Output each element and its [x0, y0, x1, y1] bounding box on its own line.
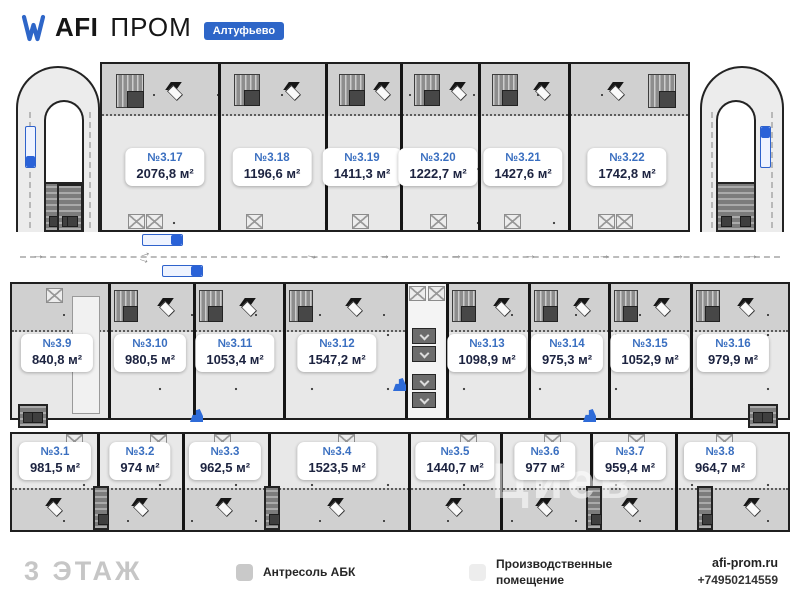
- unit-area: 977 м²: [525, 460, 564, 475]
- stairs-icon: [534, 290, 558, 322]
- unit-label-3-20[interactable]: №3.20 1222,7 м²: [398, 148, 477, 186]
- stairs-icon: [289, 290, 313, 322]
- unit-number: №3.14: [542, 338, 592, 350]
- unit-area: 1427,6 м²: [494, 166, 551, 181]
- unit-number: №3.2: [120, 446, 159, 458]
- unit-number: №3.8: [695, 446, 745, 458]
- unit-label-3-12[interactable]: №3.12 1547,2 м²: [297, 334, 376, 372]
- unit-number: №3.20: [409, 152, 466, 164]
- unit-label-3-4[interactable]: №3.4 1523,5 м²: [297, 442, 376, 480]
- pallet-jack-icon: [156, 298, 178, 316]
- unit-area: 1196,6 м²: [244, 166, 301, 181]
- unit-label-3-1[interactable]: №3.1 981,5 м²: [19, 442, 91, 480]
- lane-marking: [771, 112, 773, 228]
- stairs-icon: [748, 404, 778, 428]
- unit-area: 1547,2 м²: [308, 352, 365, 367]
- stairs-icon: [116, 74, 144, 108]
- floor-plan-page: AFI ПРОМ Алтуфьево: [0, 0, 800, 595]
- stairs-icon: [696, 290, 720, 322]
- unit-label-3-9[interactable]: №3.9 840,8 м²: [21, 334, 93, 372]
- unit-wall: [405, 284, 408, 418]
- location-badge[interactable]: Алтуфьево: [204, 22, 284, 40]
- stairs-icon: [264, 486, 280, 530]
- shaft-box-icon: [46, 288, 63, 303]
- stairs-icon: [716, 182, 756, 232]
- brand-prom: ПРОМ: [110, 12, 191, 43]
- truck-icon: [760, 126, 771, 168]
- pallet-jack-icon: [736, 298, 758, 316]
- unit-label-3-19[interactable]: №3.19 1411,3 м²: [323, 148, 402, 186]
- unit-label-3-13[interactable]: №3.13 1098,9 м²: [447, 334, 526, 372]
- unit-number: №3.16: [708, 338, 758, 350]
- shaft-box-icon: [616, 214, 633, 229]
- unit-area: 1098,9 м²: [458, 352, 515, 367]
- stairs-icon: [492, 74, 518, 106]
- unit-area: 979,9 м²: [708, 352, 758, 367]
- road-center-line: [20, 256, 780, 258]
- pallet-jack-icon: [282, 82, 304, 100]
- unit-area: 974 м²: [120, 460, 159, 475]
- pallet-jack-icon: [492, 298, 514, 316]
- stairs-icon: [339, 74, 365, 106]
- pallet-jack-icon: [130, 498, 152, 516]
- arrow-icon: →: [598, 248, 611, 261]
- arrow-icon: →: [378, 248, 391, 261]
- unit-number: №3.5: [426, 446, 483, 458]
- unit-number: №3.19: [334, 152, 391, 164]
- arrow-icon: →: [136, 250, 152, 266]
- legend-label: Производственные помещение: [496, 556, 614, 588]
- pallet-jack-icon: [344, 298, 366, 316]
- stairs-icon: [414, 74, 440, 106]
- unit-number: №3.1: [30, 446, 80, 458]
- footer-phone: +74950214559: [698, 573, 778, 587]
- unit-area: 962,5 м²: [200, 460, 250, 475]
- pallet-jack-icon: [572, 298, 594, 316]
- elevator-icon: [412, 374, 436, 390]
- unit-area: 975,3 м²: [542, 352, 592, 367]
- shaft-box-icon: [246, 214, 263, 229]
- unit-wall: [400, 64, 403, 230]
- unit-number: №3.22: [598, 152, 655, 164]
- unit-area: 1053,4 м²: [206, 352, 263, 367]
- unit-area: 1222,7 м²: [409, 166, 466, 181]
- unit-area: 1052,9 м²: [621, 352, 678, 367]
- arrow-icon: →: [746, 248, 759, 261]
- truck-icon: [142, 234, 183, 246]
- stairs-icon: [648, 74, 676, 108]
- lane-marking: [711, 112, 713, 228]
- stairs-icon: [614, 290, 638, 322]
- antresol-strip-top: [102, 64, 688, 116]
- pallet-jack-icon: [326, 498, 348, 516]
- unit-number: №3.3: [200, 446, 250, 458]
- unit-label-3-16[interactable]: №3.16 979,9 м²: [697, 334, 769, 372]
- arrow-icon: →: [450, 248, 463, 261]
- stairs-icon: [199, 290, 223, 322]
- unit-number: №3.11: [206, 338, 263, 350]
- header: AFI ПРОМ Алтуфьево: [20, 12, 284, 43]
- unit-label-3-14[interactable]: №3.14 975,3 м²: [531, 334, 603, 372]
- unit-wall: [182, 434, 185, 530]
- unit-wall: [283, 284, 286, 418]
- unit-label-3-6[interactable]: №3.6 977 м²: [514, 442, 575, 480]
- unit-label-3-2[interactable]: №3.2 974 м²: [109, 442, 170, 480]
- shaft-box-icon: [504, 214, 521, 229]
- unit-label-3-7[interactable]: №3.7 959,4 м²: [594, 442, 666, 480]
- unit-wall: [478, 64, 481, 230]
- shaft-box-icon: [428, 286, 445, 301]
- antresol-strip-bottom: [12, 488, 788, 530]
- unit-label-3-11[interactable]: №3.11 1053,4 м²: [195, 334, 274, 372]
- shaft-box-icon: [409, 286, 426, 301]
- stairs-icon: [93, 486, 109, 530]
- unit-number: №3.21: [494, 152, 551, 164]
- legend-label: Антресоль АБК: [263, 564, 355, 580]
- unit-number: №3.10: [125, 338, 175, 350]
- unit-wall: [218, 64, 221, 230]
- unit-label-3-8[interactable]: №3.8 964,7 м²: [684, 442, 756, 480]
- stairs-icon: [234, 74, 260, 106]
- shaft-box-icon: [146, 214, 163, 229]
- stairs-icon: [452, 290, 476, 322]
- unit-number: №3.17: [136, 152, 193, 164]
- unit-area: 980,5 м²: [125, 352, 175, 367]
- pallet-jack-icon: [238, 298, 260, 316]
- legend-item-antresol: Антресоль АБК: [236, 564, 355, 581]
- pallet-jack-icon: [652, 298, 674, 316]
- brand-afi: AFI: [55, 12, 98, 43]
- pallet-jack-icon: [214, 498, 236, 516]
- unit-number: №3.13: [458, 338, 515, 350]
- unit-label-3-5[interactable]: №3.5 1440,7 м²: [415, 442, 494, 480]
- arrow-icon: →: [672, 248, 685, 261]
- arrow-icon: →: [32, 248, 45, 261]
- stairs-icon: [697, 486, 713, 530]
- stairs-icon: [18, 404, 48, 428]
- unit-wall: [675, 434, 678, 530]
- unit-label-3-3[interactable]: №3.3 962,5 м²: [189, 442, 261, 480]
- afi-logo-icon: [20, 14, 47, 42]
- unit-area: 959,4 м²: [605, 460, 655, 475]
- shaft-box-icon: [598, 214, 615, 229]
- unit-number: №3.15: [621, 338, 678, 350]
- unit-area: 2076,8 м²: [136, 166, 193, 181]
- unit-wall: [568, 64, 571, 230]
- floor-title: 3 ЭТАЖ: [24, 556, 142, 587]
- shaft-box-icon: [128, 214, 145, 229]
- legend-swatch-production: [469, 564, 486, 581]
- lane-marking: [89, 112, 91, 228]
- unit-number: №3.18: [244, 152, 301, 164]
- unit-area: 981,5 м²: [30, 460, 80, 475]
- unit-wall: [325, 64, 328, 230]
- unit-number: №3.6: [525, 446, 564, 458]
- pallet-jack-icon: [532, 82, 554, 100]
- unit-label-3-21[interactable]: №3.21 1427,6 м²: [483, 148, 562, 186]
- shaft-box-icon: [352, 214, 369, 229]
- footer-website: afi-prom.ru: [712, 556, 778, 570]
- elevator-icon: [412, 346, 436, 362]
- unit-number: №3.7: [605, 446, 655, 458]
- pallet-jack-icon: [372, 82, 394, 100]
- unit-label-3-17[interactable]: №3.17 2076,8 м²: [125, 148, 204, 186]
- unit-area: 1440,7 м²: [426, 460, 483, 475]
- arrow-icon: →: [305, 247, 321, 263]
- unit-wall: [408, 434, 411, 530]
- unit-area: 1742,8 м²: [598, 166, 655, 181]
- arrow-icon: →: [524, 248, 537, 261]
- elevator-icon: [412, 392, 436, 408]
- pallet-jack-icon: [444, 498, 466, 516]
- unit-label-3-22[interactable]: №3.22 1742,8 м²: [587, 148, 666, 186]
- stairs-icon: [114, 290, 138, 322]
- unit-number: №3.9: [32, 338, 82, 350]
- unit-label-3-10[interactable]: №3.10 980,5 м²: [114, 334, 186, 372]
- unit-wall: [690, 284, 693, 418]
- shaft-box-icon: [430, 214, 447, 229]
- truck-icon: [162, 265, 203, 277]
- pallet-jack-icon: [448, 82, 470, 100]
- stairs-icon: [57, 184, 83, 232]
- unit-area: 840,8 м²: [32, 352, 82, 367]
- legend-swatch-antresol: [236, 564, 253, 581]
- legend-item-production: Производственные помещение: [469, 556, 614, 588]
- pallet-jack-icon: [164, 82, 186, 100]
- unit-area: 964,7 м²: [695, 460, 745, 475]
- unit-number: №3.12: [308, 338, 365, 350]
- unit-area: 1523,5 м²: [308, 460, 365, 475]
- truck-icon: [25, 126, 36, 168]
- pallet-jack-icon: [44, 498, 66, 516]
- pallet-jack-icon: [606, 82, 628, 100]
- unit-area: 1411,3 м²: [334, 166, 391, 181]
- unit-label-3-15[interactable]: №3.15 1052,9 м²: [610, 334, 689, 372]
- unit-number: №3.4: [308, 446, 365, 458]
- pallet-jack-icon: [742, 498, 764, 516]
- unit-label-3-18[interactable]: №3.18 1196,6 м²: [233, 148, 312, 186]
- unit-wall: [108, 284, 111, 418]
- elevator-icon: [412, 328, 436, 344]
